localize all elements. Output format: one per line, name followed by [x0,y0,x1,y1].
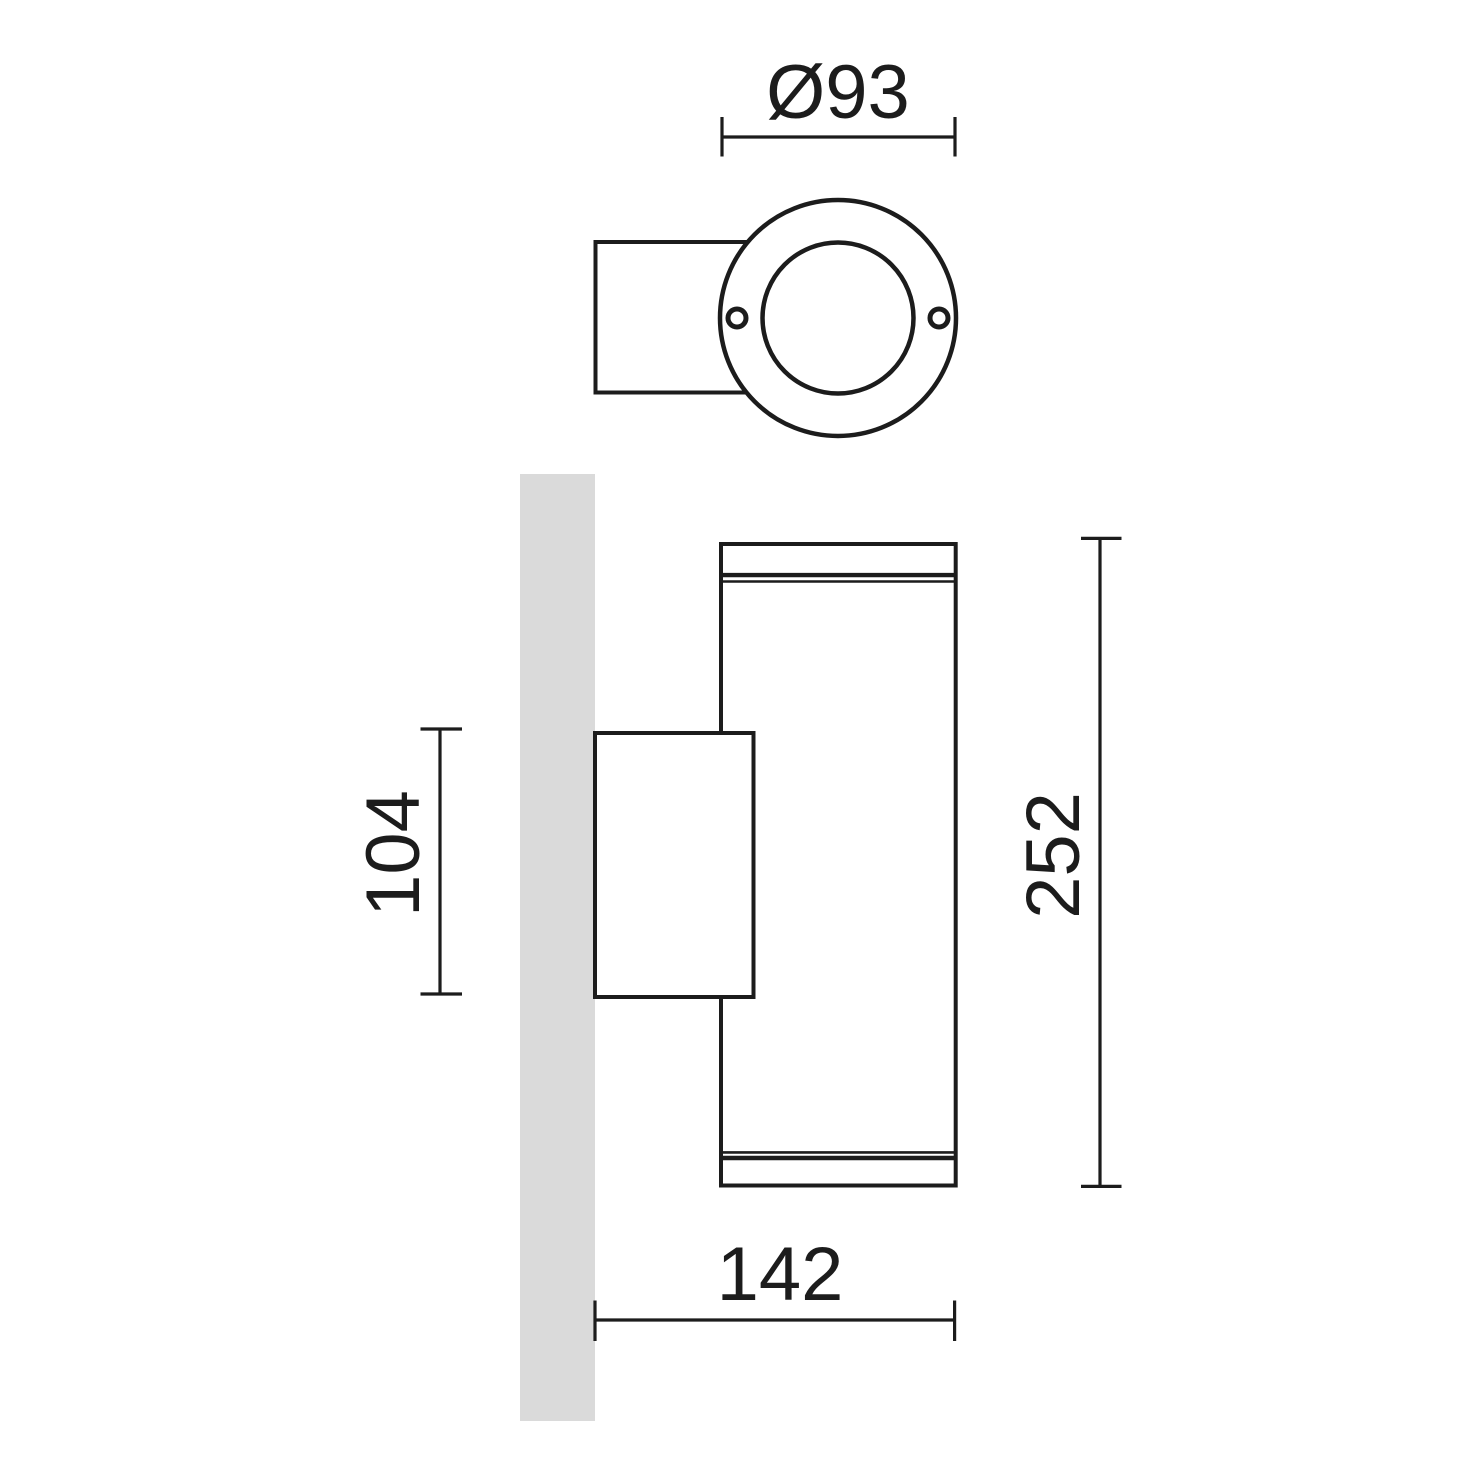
svg-text:Ø93: Ø93 [766,50,910,135]
svg-text:252: 252 [1011,792,1096,919]
svg-text:142: 142 [717,1232,844,1317]
svg-text:104: 104 [351,790,436,917]
